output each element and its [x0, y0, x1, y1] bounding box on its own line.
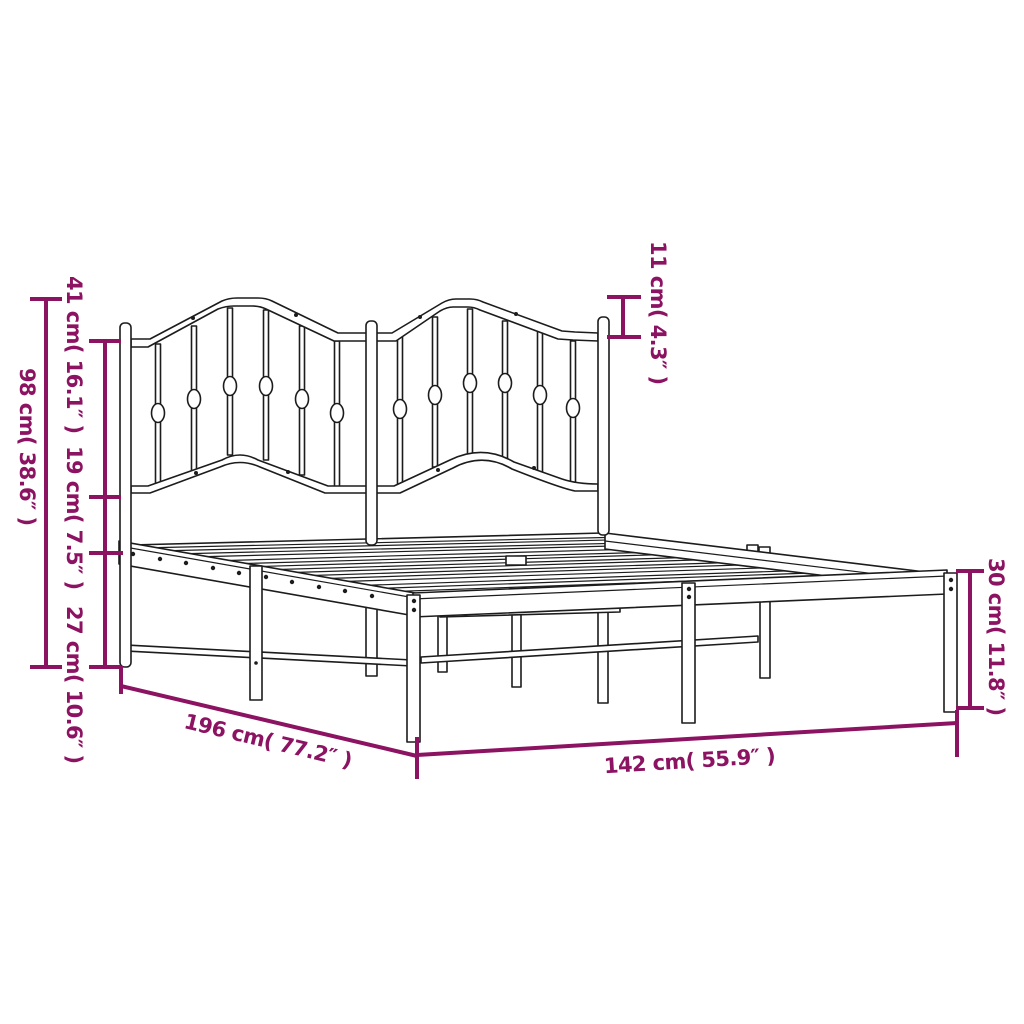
headboard-gap-label: 19 cm( 7.5″ ) [61, 446, 87, 589]
bed-frame-drawing [0, 0, 1024, 1024]
base-clearance-label: 27 cm( 10.6″ ) [61, 606, 87, 763]
dimension-diagram: 98 cm( 38.6″ ) 41 cm( 16.1″ ) 19 cm( 7.5… [0, 0, 1024, 1024]
overall-height-label: 98 cm( 38.6″ ) [14, 368, 40, 525]
slat-platform [119, 533, 950, 617]
headboard-top-rail [131, 298, 598, 347]
headboard-panel-height-label: 41 cm( 16.1″ ) [61, 276, 87, 433]
side-height-label: 30 cm( 11.8″ ) [983, 558, 1009, 715]
peak-height-label: 11 cm( 4.3″ ) [645, 241, 671, 384]
headboard-bottom-rail [131, 452, 598, 493]
